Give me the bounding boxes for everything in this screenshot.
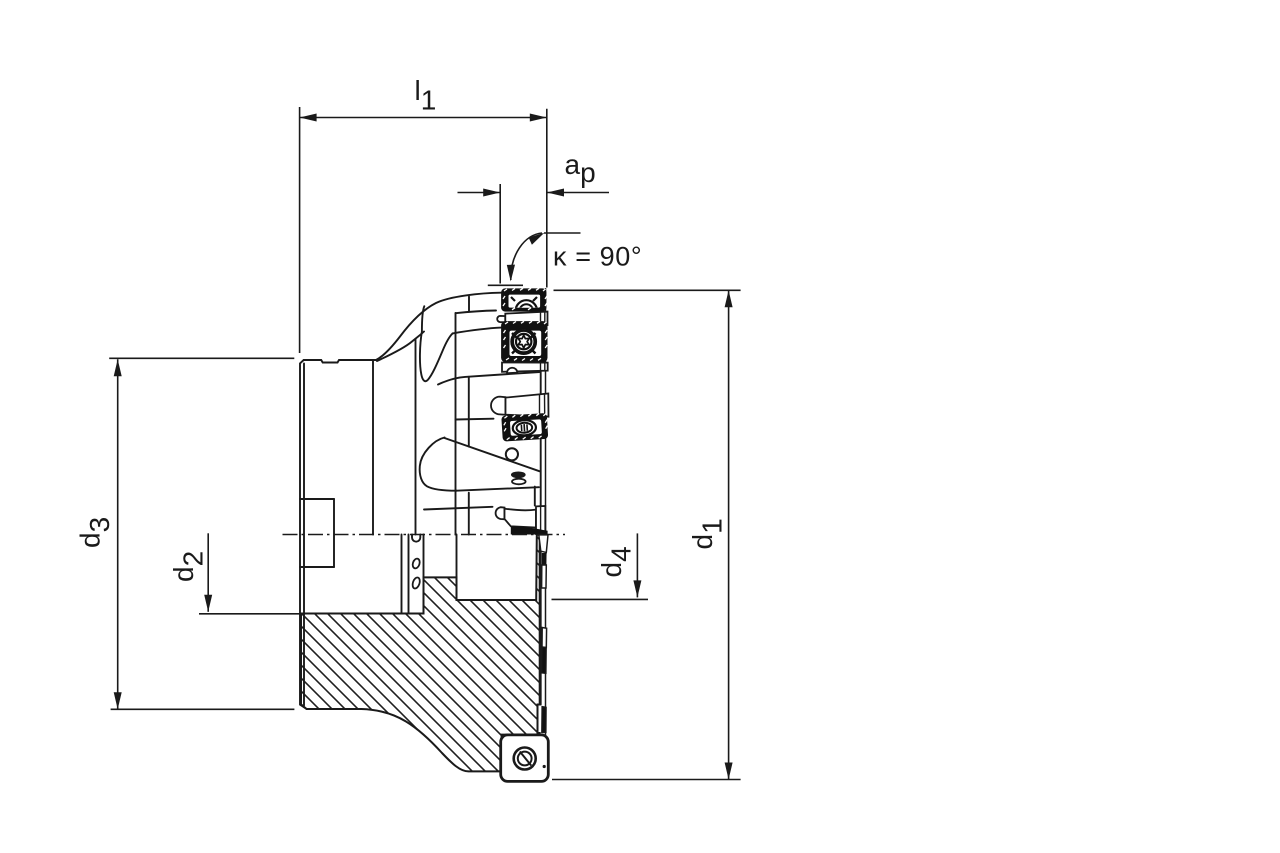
svg-text:κ = 90°: κ = 90° <box>553 242 642 272</box>
